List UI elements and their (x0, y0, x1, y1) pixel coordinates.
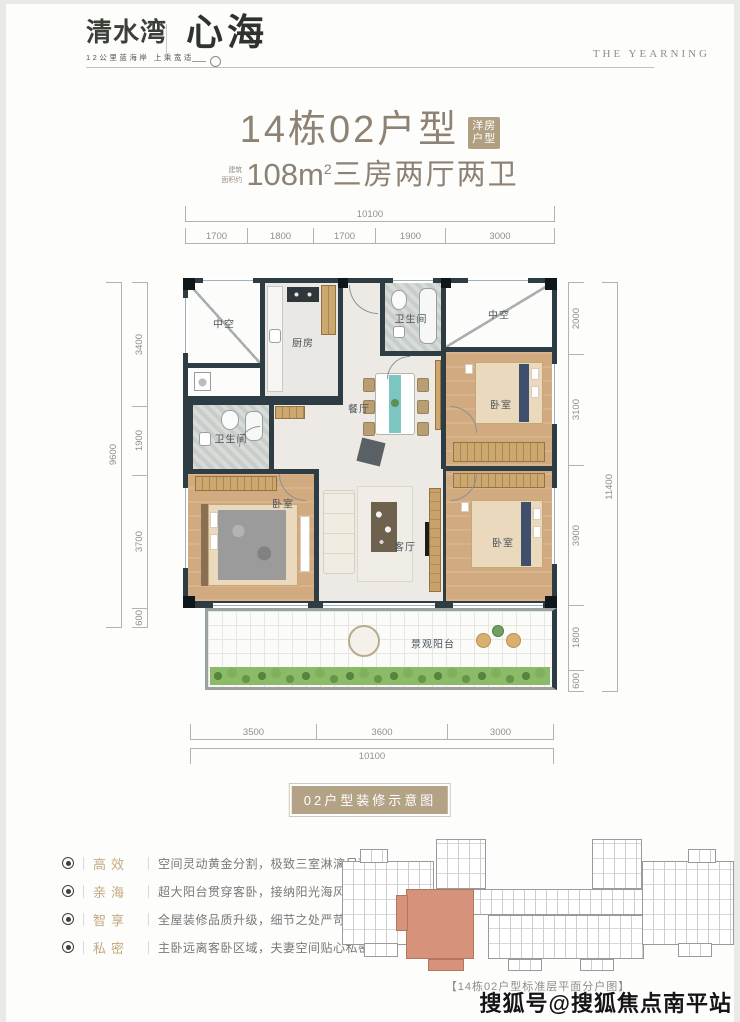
unit-type-badge: 洋房 户型 (468, 117, 500, 149)
dim-label: 1800 (571, 627, 582, 648)
wardrobe-icon (453, 442, 545, 462)
page-edge-left (0, 0, 6, 1022)
column (183, 596, 195, 608)
dim-label: 3400 (134, 334, 145, 355)
keyplan-left-lower-tab (364, 943, 398, 957)
keyplan-right-wing (642, 861, 734, 945)
column (183, 278, 195, 290)
bullet-icon (62, 941, 74, 953)
centerpiece-plant-icon (391, 399, 399, 407)
feature-row: 智享 全屋装修品质升级，细节之处严苛入微 (62, 909, 371, 929)
label-bedroom-left: 卧室 (272, 496, 294, 511)
pillow-icon (531, 386, 539, 398)
balcony: 景观阳台 (205, 608, 557, 690)
feature-text: 空间灵动黄金分割，极致三室淋漓尽致 (158, 855, 371, 872)
dim-label: 10100 (357, 209, 383, 220)
pillow-icon (531, 368, 539, 380)
keyplan-center-tab (580, 959, 614, 971)
dim-label: 600 (571, 673, 582, 689)
window (183, 488, 188, 568)
planter-greenery (210, 667, 550, 685)
balcony-chair-icon (476, 633, 491, 648)
dim-bottom-segments: 3500 3600 3000 (190, 724, 554, 740)
divider (148, 941, 149, 954)
label-bath-top: 卫生间 (395, 311, 428, 326)
dim-label: 10100 (359, 751, 385, 762)
cooktop-icon (287, 287, 319, 302)
dim-right-segments: 2000 3100 3900 1800 600 (568, 282, 584, 692)
header-divider (166, 24, 167, 58)
bath-sink-icon (199, 432, 211, 446)
unit-area-row: 建筑 面积约 108m 2 三房两厅两卫 (0, 159, 740, 190)
brand-qingshuiwan-logo: 清水湾 12公里蓝海岸 上乘宽适 (86, 20, 194, 63)
feature-keyword: 高效 (93, 854, 139, 873)
tv-icon (425, 522, 429, 556)
keyplan-core-right (592, 839, 642, 889)
dim-label: 1900 (400, 231, 421, 242)
label-living: 客厅 (394, 539, 416, 554)
dim-label: 1700 (334, 231, 355, 242)
feature-text: 超大阳台贯穿客卧，接纳阳光海风光临 (158, 883, 371, 900)
dining-chair-icon (363, 422, 375, 436)
room-laundry (188, 368, 260, 396)
highlighted-unit-02-notch (396, 895, 408, 931)
bullet-icon (62, 857, 74, 869)
zone-living (319, 469, 443, 601)
xinhai-seal-icon (210, 56, 221, 67)
divider (83, 913, 84, 926)
label-bedroom-bottom-right: 卧室 (492, 535, 514, 550)
column (545, 596, 557, 608)
dining-cabinet (435, 360, 441, 430)
dim-label: 3000 (490, 727, 511, 738)
washer-icon (194, 372, 211, 391)
kitchen-cabinet (321, 285, 336, 335)
label-bedroom-top-right: 卧室 (490, 397, 512, 412)
label-dining: 餐厅 (348, 401, 370, 416)
bench-icon (300, 516, 310, 572)
headboard (201, 504, 208, 586)
dim-label: 9600 (108, 444, 119, 465)
feature-keyword: 私密 (93, 938, 139, 957)
dim-label: 3900 (571, 525, 582, 546)
brand-qingshuiwan-name: 清水湾 (86, 20, 194, 46)
balcony-chair-icon (506, 633, 521, 648)
pillow-icon (210, 512, 218, 528)
dim-top-segments: 1700 1800 1700 1900 3000 (185, 228, 555, 244)
highlighted-unit-02 (406, 889, 474, 959)
dim-label: 600 (134, 610, 145, 626)
building-key-plan (340, 833, 736, 973)
feature-row: 高效 空间灵动黄金分割，极致三室淋漓尽致 (62, 853, 371, 873)
window (203, 278, 253, 283)
dim-label: 3700 (134, 531, 145, 552)
sliding-door (323, 603, 435, 608)
balcony-table-icon (348, 625, 380, 657)
hall-cabinet (275, 406, 305, 419)
nightstand-icon (465, 364, 473, 374)
feature-row: 私密 主卧远离客卧区域，夫妻空间贴心私密 (62, 937, 371, 957)
feature-text: 主卧远离客卧区域，夫妻空间贴心私密 (158, 939, 371, 956)
dim-label: 1700 (206, 231, 227, 242)
window (552, 364, 557, 424)
page-edge-right (734, 0, 740, 1022)
divider (83, 885, 84, 898)
divider (148, 857, 149, 870)
feature-row: 亲海 超大阳台贯穿客卧，接纳阳光海风光临 (62, 881, 371, 901)
dim-left-segments: 3400 1900 3700 600 (132, 282, 148, 628)
bed-throw (519, 364, 529, 422)
pillow-icon (210, 534, 218, 550)
bed-quilt (218, 510, 286, 580)
highlighted-unit-02-tab (428, 959, 464, 971)
area-superscript: 2 (324, 162, 332, 176)
divider (83, 941, 84, 954)
dim-left-total: 9600 (106, 282, 122, 628)
divider (83, 857, 84, 870)
bath-sink-icon (393, 326, 405, 338)
header-rule (86, 67, 654, 68)
dining-chair-icon (417, 422, 429, 436)
keyplan-right-tab (688, 849, 716, 863)
page-edge-top (0, 0, 740, 4)
unit-title-row: 14栋02户型 洋房 户型 (0, 110, 740, 152)
label-kitchen: 厨房 (292, 335, 314, 350)
label-void-left: 中空 (213, 316, 235, 331)
sofa-icon (323, 490, 355, 574)
pillow-icon (533, 526, 541, 538)
unit-title: 14栋02户型 (240, 110, 460, 152)
feature-keyword: 智享 (93, 910, 139, 929)
brand-xinhai-logo: 心海 (186, 14, 268, 67)
label-bath-left: 卫生间 (215, 431, 248, 446)
badge-line-1: 洋房 (472, 120, 496, 133)
dim-label: 3000 (489, 231, 510, 242)
brand-qingshuiwan-tagline: 12公里蓝海岸 上乘宽适 (86, 52, 194, 63)
feature-keyword: 亲海 (93, 882, 139, 901)
window (393, 278, 433, 283)
toilet-icon (221, 410, 239, 430)
area-description: 三房两厅两卫 (333, 161, 519, 190)
window (183, 298, 188, 353)
dim-label: 3500 (243, 727, 264, 738)
badge-line-2: 户型 (472, 133, 496, 146)
balcony-plant-icon (492, 625, 504, 637)
column (441, 278, 451, 288)
nightstand-icon (461, 502, 469, 512)
dim-label: 1800 (270, 231, 291, 242)
wardrobe-icon (195, 476, 277, 491)
column (338, 278, 348, 288)
zone-hall (274, 405, 343, 469)
divider (148, 913, 149, 926)
dim-label: 3100 (571, 399, 582, 420)
dim-bottom-total: 10100 (190, 748, 554, 764)
dining-chair-icon (417, 378, 429, 392)
dim-label: 3600 (371, 727, 392, 738)
tv-cabinet-icon (429, 488, 441, 592)
dim-label: 2000 (571, 308, 582, 329)
keyplan-center-tab (508, 959, 542, 971)
plan-tag: 02户型装修示意图 (292, 786, 448, 814)
bullet-icon (62, 885, 74, 897)
dining-chair-icon (417, 400, 429, 414)
label-balcony: 景观阳台 (411, 636, 455, 651)
keyplan-right-lower-tab (678, 943, 712, 957)
xinhai-seal-dash (192, 61, 206, 62)
area-number: 108m (246, 159, 324, 190)
dim-top-total: 10100 (185, 206, 555, 222)
toilet-icon (391, 290, 407, 310)
floorplan: 中空 厨房 卫生间 中空 餐厅 卧室 卫生间 卧室 客厅 卧室 (183, 278, 557, 608)
feature-text: 全屋装修品质升级，细节之处严苛入微 (158, 911, 371, 928)
dim-label: 1900 (134, 430, 145, 451)
kitchen-sink-icon (269, 329, 281, 343)
keyplan-center-units (488, 915, 644, 959)
bed-throw (521, 502, 531, 566)
window (552, 488, 557, 564)
dim-right-total: 11400 (602, 282, 618, 692)
watermark: 搜狐号@搜狐焦点南平站 (480, 986, 732, 1018)
window (213, 603, 308, 608)
brand-english: THE YEARNING (593, 48, 710, 60)
brand-xinhai-name: 心海 (186, 14, 268, 51)
window (468, 278, 528, 283)
column (545, 278, 557, 290)
divider (148, 885, 149, 898)
dim-label: 11400 (604, 474, 615, 500)
keyplan-core-left (436, 839, 486, 889)
keyplan-left-tab (360, 849, 388, 863)
label-void-right: 中空 (488, 307, 510, 322)
bullet-icon (62, 913, 74, 925)
dining-chair-icon (363, 378, 375, 392)
area-prefix: 建筑 面积约 (221, 166, 242, 185)
pillow-icon (533, 508, 541, 520)
sliding-door (453, 603, 543, 608)
